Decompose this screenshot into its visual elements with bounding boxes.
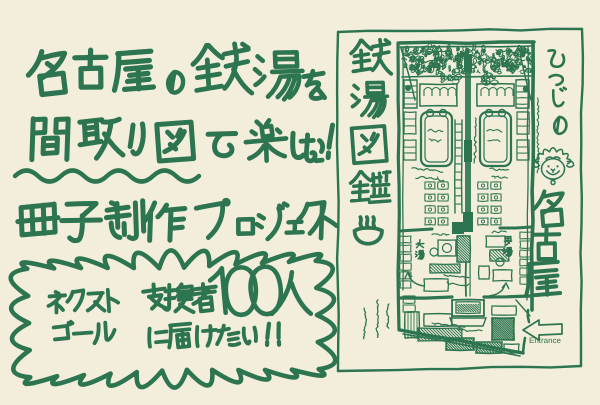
svg-text:Entrance: Entrance [529, 336, 562, 345]
